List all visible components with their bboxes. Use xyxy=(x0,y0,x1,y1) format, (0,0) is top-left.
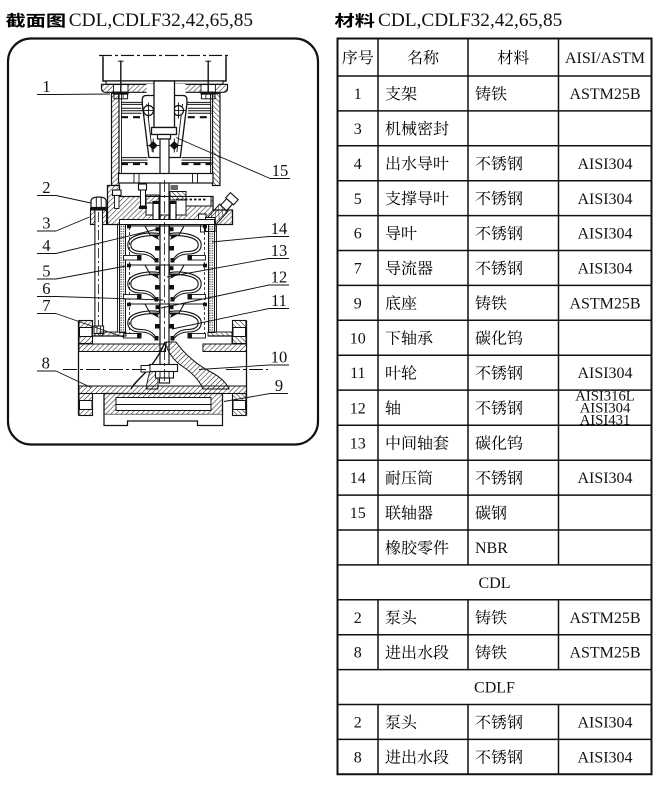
svg-text:AISI304: AISI304 xyxy=(577,470,632,487)
svg-text:11: 11 xyxy=(271,291,287,310)
svg-text:6: 6 xyxy=(354,226,362,243)
svg-text:15: 15 xyxy=(272,161,289,180)
svg-text:CDLF: CDLF xyxy=(474,680,515,697)
svg-text:AISI304: AISI304 xyxy=(577,226,632,243)
svg-text:3: 3 xyxy=(354,121,362,138)
svg-text:2: 2 xyxy=(354,715,362,732)
svg-text:AISI304: AISI304 xyxy=(577,715,632,732)
svg-text:AISI304: AISI304 xyxy=(577,365,632,382)
svg-text:13: 13 xyxy=(271,241,288,260)
svg-text:15: 15 xyxy=(350,505,366,522)
svg-text:AISI/ASTM: AISI/ASTM xyxy=(565,50,645,67)
svg-text:14: 14 xyxy=(271,219,288,238)
svg-text:ASTM25B: ASTM25B xyxy=(569,296,640,313)
svg-text:13: 13 xyxy=(350,435,366,452)
svg-text:1: 1 xyxy=(42,77,50,96)
svg-text:4: 4 xyxy=(354,156,362,173)
svg-text:2: 2 xyxy=(354,610,362,627)
svg-text:3: 3 xyxy=(42,214,50,233)
svg-text:AISI304: AISI304 xyxy=(577,749,632,766)
svg-text:9: 9 xyxy=(275,376,283,395)
svg-text:7: 7 xyxy=(354,261,362,278)
svg-text:AISI304: AISI304 xyxy=(577,191,632,208)
svg-text:10: 10 xyxy=(271,348,288,367)
svg-text:NBR: NBR xyxy=(475,540,508,557)
svg-text:12: 12 xyxy=(271,268,288,287)
svg-text:CDL,CDLF32,42,65,85: CDL,CDLF32,42,65,85 xyxy=(378,10,562,31)
svg-text:14: 14 xyxy=(350,470,366,487)
svg-text:8: 8 xyxy=(354,645,362,662)
svg-text:CDL,CDLF32,42,65,85: CDL,CDLF32,42,65,85 xyxy=(69,10,253,31)
svg-text:8: 8 xyxy=(354,749,362,766)
svg-text:AISI431: AISI431 xyxy=(580,413,631,429)
svg-text:2: 2 xyxy=(42,178,50,197)
svg-text:12: 12 xyxy=(350,400,366,417)
svg-text:4: 4 xyxy=(42,236,50,255)
svg-text:AISI304: AISI304 xyxy=(577,156,632,173)
svg-text:ASTM25B: ASTM25B xyxy=(569,86,640,103)
svg-text:9: 9 xyxy=(354,296,362,313)
svg-text:AISI304: AISI304 xyxy=(577,261,632,278)
svg-text:ASTM25B: ASTM25B xyxy=(569,610,640,627)
svg-text:CDL: CDL xyxy=(479,575,511,592)
svg-text:8: 8 xyxy=(42,354,50,373)
svg-text:7: 7 xyxy=(42,296,50,315)
svg-text:11: 11 xyxy=(350,365,365,382)
svg-text:5: 5 xyxy=(354,191,362,208)
svg-text:5: 5 xyxy=(42,262,50,281)
svg-text:1: 1 xyxy=(354,86,362,103)
svg-text:10: 10 xyxy=(350,330,366,347)
svg-text:ASTM25B: ASTM25B xyxy=(569,645,640,662)
